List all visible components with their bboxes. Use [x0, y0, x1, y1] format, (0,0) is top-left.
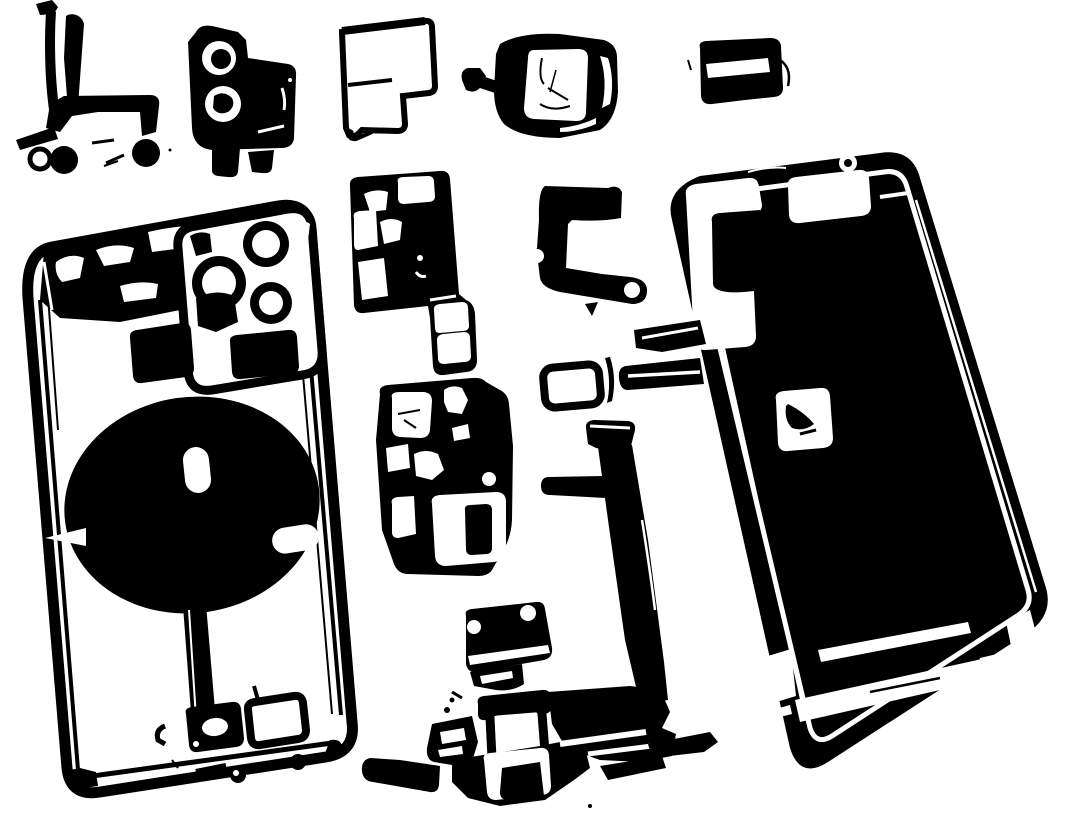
front-flex-cable-part: [16, 0, 172, 174]
charging-port-flex: [362, 686, 718, 808]
corner-bracket-plate: [342, 21, 435, 139]
speaker-module-part: [450, 602, 553, 703]
c-bracket-part: [530, 186, 647, 316]
teardown-photo: [0, 0, 1080, 836]
back-housing: [28, 205, 378, 792]
display-assembly: [619, 152, 1048, 768]
sim-tray-frame: [542, 357, 614, 408]
slot-bracket-part: [688, 38, 789, 104]
logic-board-part: [376, 378, 513, 576]
teardown-stencil-image: [0, 0, 1080, 836]
camera-bracket-part: [188, 26, 296, 178]
display-flex-ribbon: [541, 420, 668, 704]
mid-bracket-part: [350, 171, 477, 375]
rear-camera-module: [462, 34, 618, 138]
